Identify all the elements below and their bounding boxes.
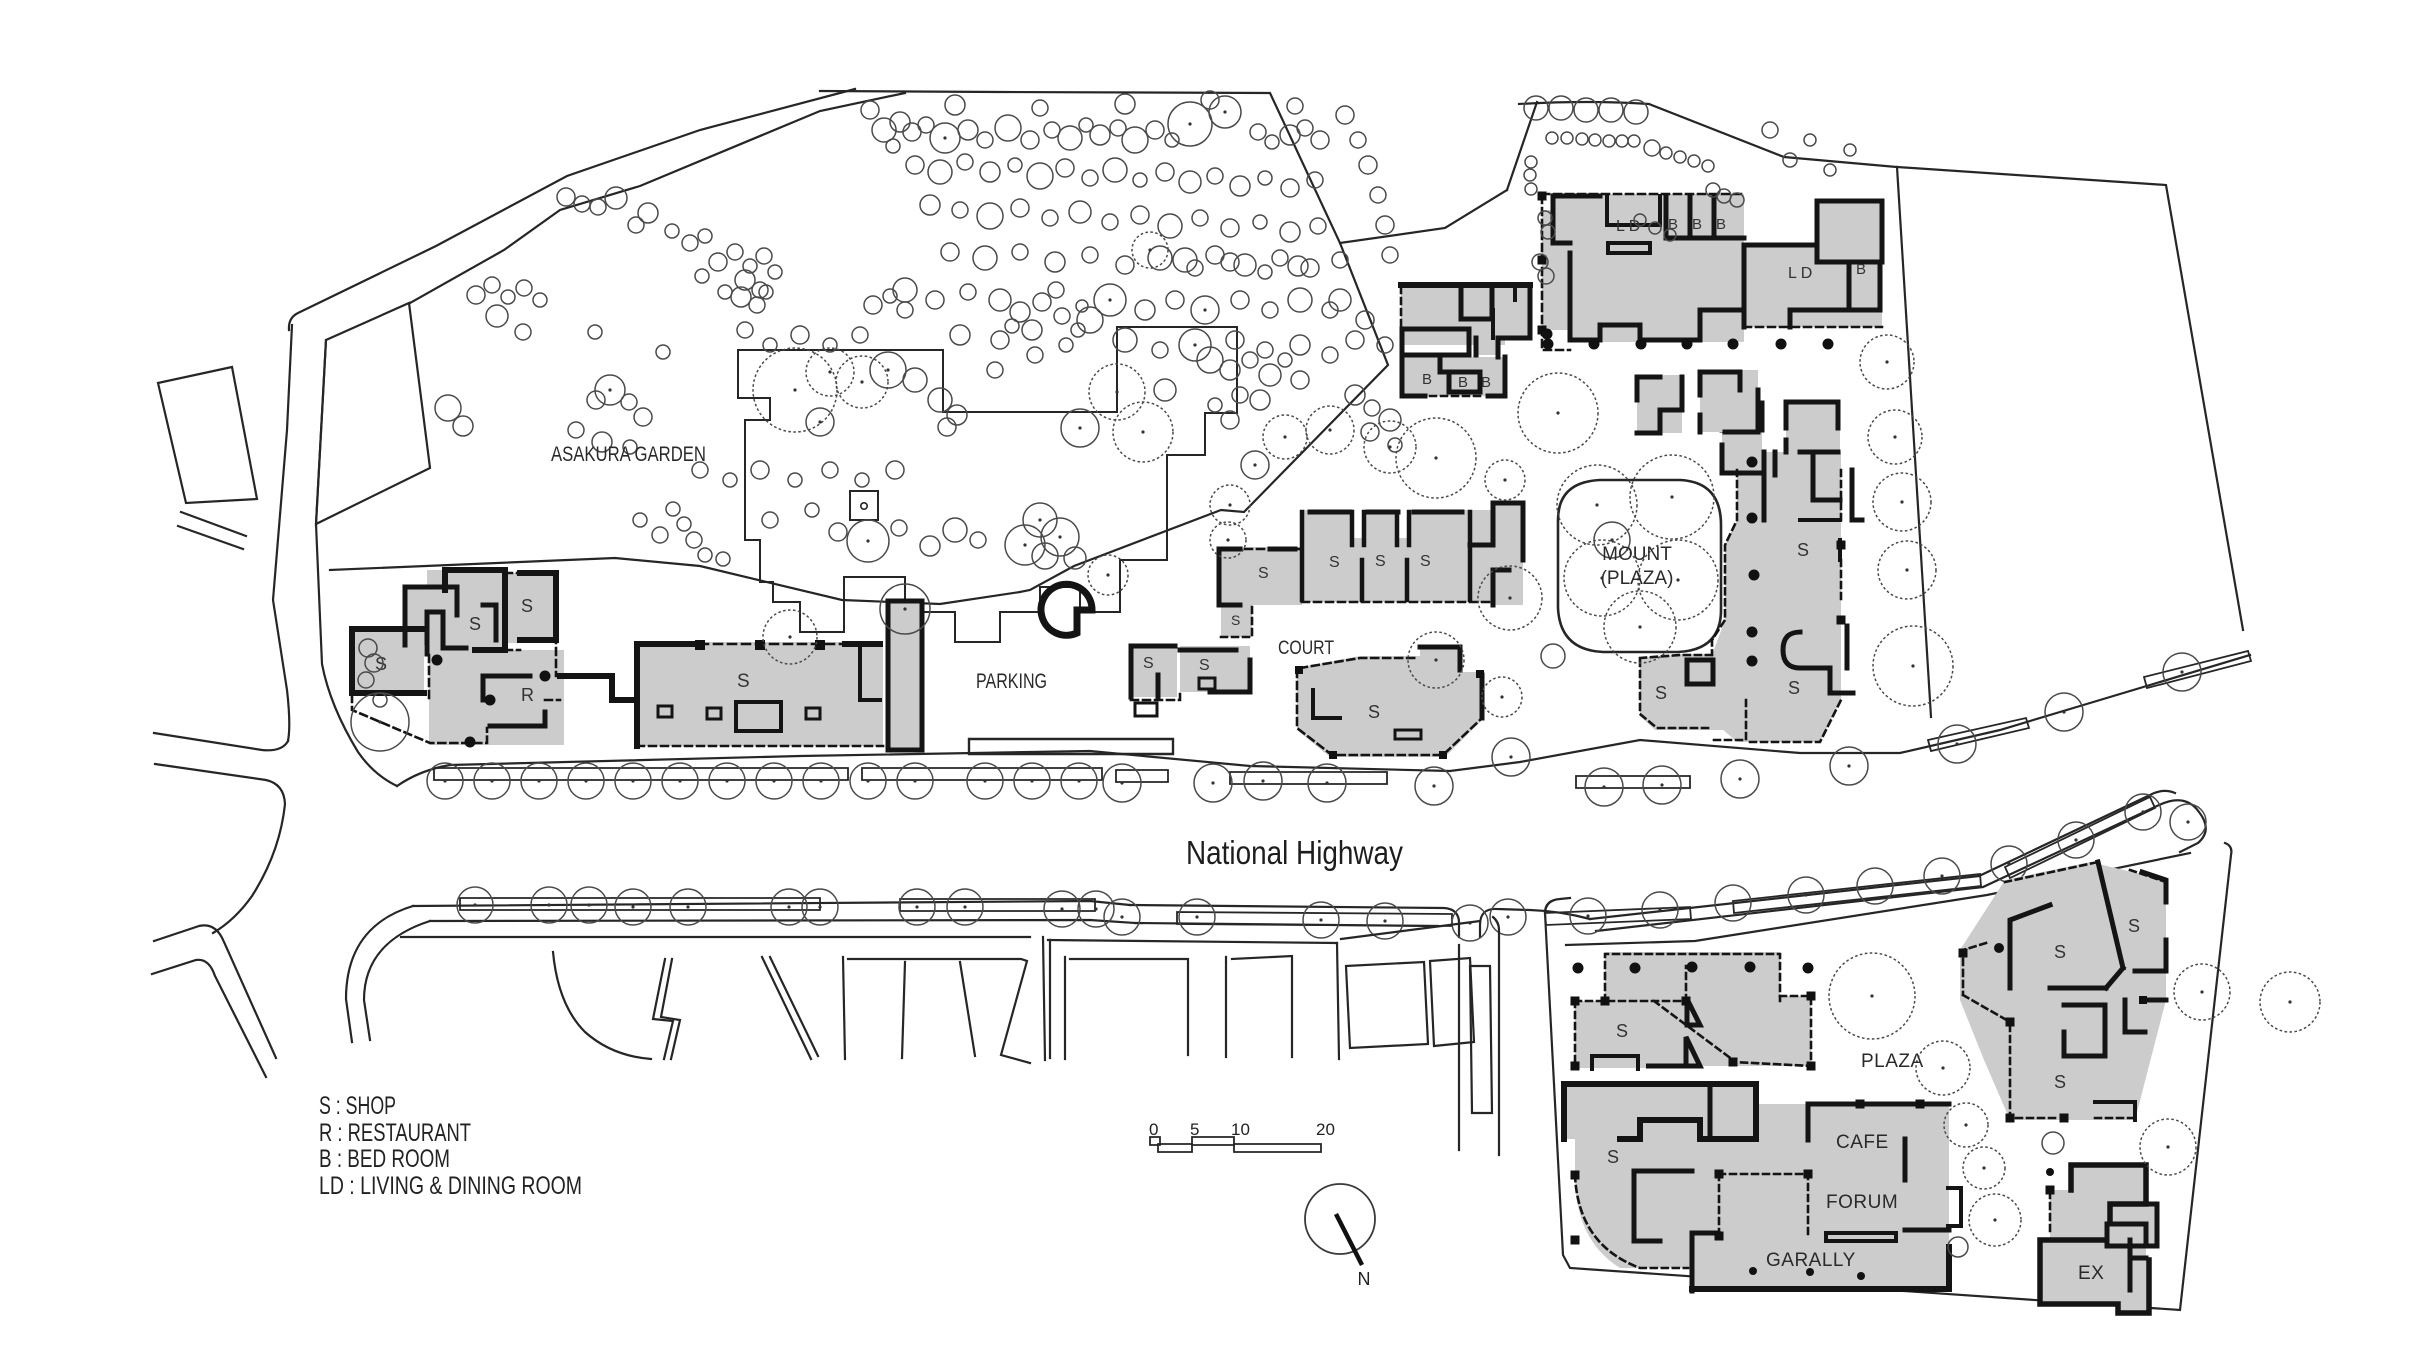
svg-text:PARKING: PARKING <box>976 670 1047 693</box>
svg-text:S: S <box>1368 702 1380 722</box>
svg-text:R: R <box>521 685 534 705</box>
svg-text:S: S <box>2128 916 2140 936</box>
svg-text:L D: L D <box>1616 218 1640 235</box>
svg-text:(PLAZA): (PLAZA) <box>1601 568 1674 589</box>
svg-text:S: S <box>1329 554 1340 571</box>
svg-text:FORUM: FORUM <box>1826 1192 1898 1213</box>
svg-text:R : RESTAURANT: R : RESTAURANT <box>319 1119 471 1147</box>
svg-text:PLAZA: PLAZA <box>1861 1051 1924 1072</box>
svg-text:S: S <box>1788 678 1800 698</box>
svg-text:S: S <box>1420 553 1431 570</box>
svg-text:B: B <box>1716 216 1726 233</box>
svg-text:National Highway: National Highway <box>1186 834 1403 871</box>
svg-text:GARALLY: GARALLY <box>1766 1250 1856 1271</box>
svg-text:S: S <box>469 614 481 634</box>
svg-text:S: S <box>1655 683 1667 703</box>
svg-text:S: S <box>1199 657 1210 674</box>
svg-text:S : SHOP: S : SHOP <box>319 1092 396 1120</box>
svg-text:B: B <box>1856 261 1866 278</box>
svg-text:S: S <box>1231 612 1240 628</box>
svg-text:MOUNT: MOUNT <box>1602 544 1672 565</box>
svg-text:S: S <box>1258 565 1269 582</box>
svg-text:S: S <box>737 671 750 692</box>
svg-text:S: S <box>2054 1072 2066 1092</box>
svg-text:S: S <box>1797 540 1809 560</box>
svg-text:B : BED ROOM: B : BED ROOM <box>319 1145 450 1173</box>
svg-text:LD : LIVING & DINING ROOM: LD : LIVING & DINING ROOM <box>319 1172 582 1200</box>
svg-text:B: B <box>1458 374 1468 391</box>
svg-text:S: S <box>2054 942 2066 962</box>
svg-text:S: S <box>1616 1021 1628 1041</box>
svg-text:COURT: COURT <box>1278 638 1334 659</box>
svg-text:B: B <box>1692 216 1702 233</box>
svg-text:EX: EX <box>2078 1263 2104 1284</box>
svg-text:S: S <box>521 596 533 616</box>
svg-text:N: N <box>1358 1269 1371 1289</box>
svg-text:CAFE: CAFE <box>1836 1132 1889 1153</box>
svg-text:S: S <box>1143 655 1154 672</box>
svg-text:S: S <box>1607 1147 1619 1167</box>
svg-text:20: 20 <box>1316 1120 1335 1139</box>
svg-text:L D: L D <box>1788 265 1812 282</box>
svg-text:ASAKURA GARDEN: ASAKURA GARDEN <box>551 443 706 466</box>
svg-text:B: B <box>1422 371 1432 388</box>
svg-text:B: B <box>1481 374 1491 391</box>
svg-text:S: S <box>1375 553 1386 570</box>
